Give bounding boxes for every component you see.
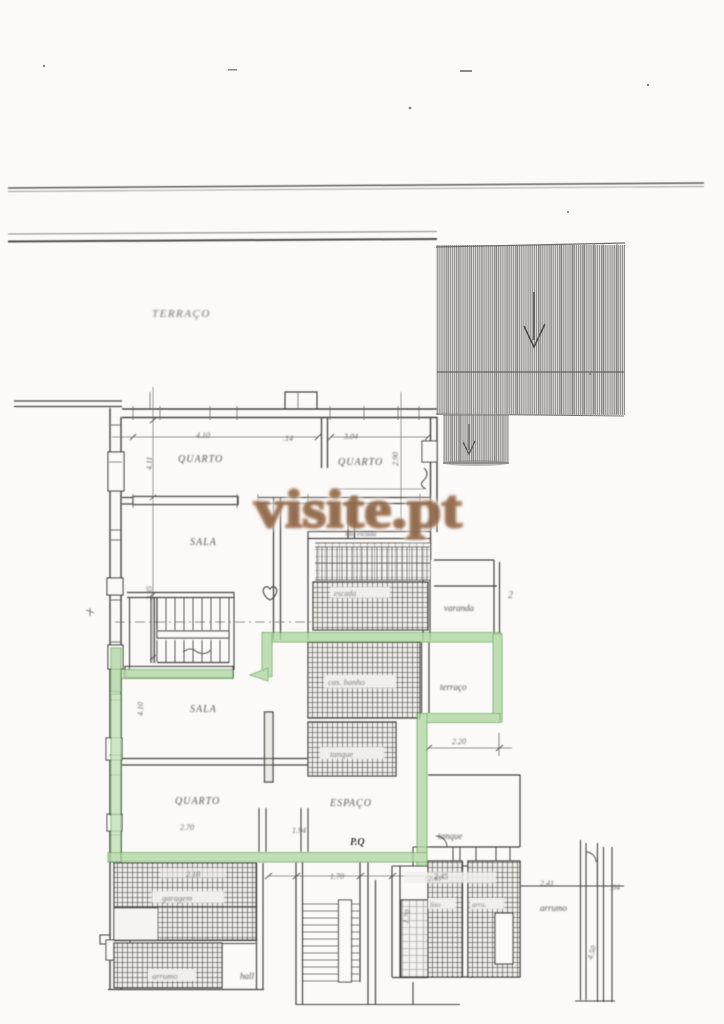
svg-text:2.45: 2.45: [434, 872, 448, 881]
svg-text:4.10: 4.10: [136, 702, 145, 716]
svg-text:3.04: 3.04: [343, 432, 358, 441]
svg-text:1.94: 1.94: [292, 826, 306, 835]
svg-text:hall: hall: [240, 971, 255, 981]
svg-text:terraço: terraço: [440, 682, 467, 692]
svg-text:escada: escada: [334, 589, 356, 598]
svg-text:.04: .04: [610, 883, 620, 892]
svg-text:arru.: arru.: [472, 901, 486, 909]
svg-text:2.35: 2.35: [145, 586, 154, 600]
svg-text:P.Q: P.Q: [350, 837, 365, 848]
svg-text:1.70: 1.70: [330, 872, 344, 881]
svg-text:TERRAÇO: TERRAÇO: [152, 308, 211, 320]
svg-text:2: 2: [508, 590, 513, 601]
svg-text:2.70: 2.70: [180, 823, 194, 832]
svg-text:2.41: 2.41: [540, 879, 554, 888]
svg-text:arrumo: arrumo: [152, 971, 178, 981]
svg-text:QUARTO: QUARTO: [175, 796, 220, 807]
svg-text:4.11: 4.11: [145, 457, 154, 470]
svg-text:2.10: 2.10: [186, 870, 200, 879]
svg-text:QUARTO: QUARTO: [178, 454, 223, 465]
svg-text:2.20: 2.20: [452, 737, 466, 746]
svg-text:visite.pt: visite.pt: [254, 479, 462, 539]
svg-text:2.90: 2.90: [391, 452, 400, 466]
svg-text:4.10: 4.10: [196, 431, 210, 440]
svg-text:SALA: SALA: [190, 704, 217, 715]
svg-text:tanque: tanque: [438, 831, 463, 841]
svg-text:QUARTO: QUARTO: [338, 457, 383, 468]
svg-text:.14: .14: [283, 434, 293, 443]
svg-text:varanda: varanda: [444, 603, 474, 613]
svg-text:lixo: lixo: [430, 901, 441, 909]
svg-text:garagem: garagem: [162, 893, 192, 903]
svg-text:arrumo: arrumo: [540, 903, 568, 913]
svg-text:cas. banho: cas. banho: [328, 677, 365, 687]
svg-text:ESPAÇO: ESPAÇO: [329, 798, 372, 809]
svg-text:tanque: tanque: [330, 749, 353, 759]
svg-text:SALA: SALA: [190, 537, 217, 548]
